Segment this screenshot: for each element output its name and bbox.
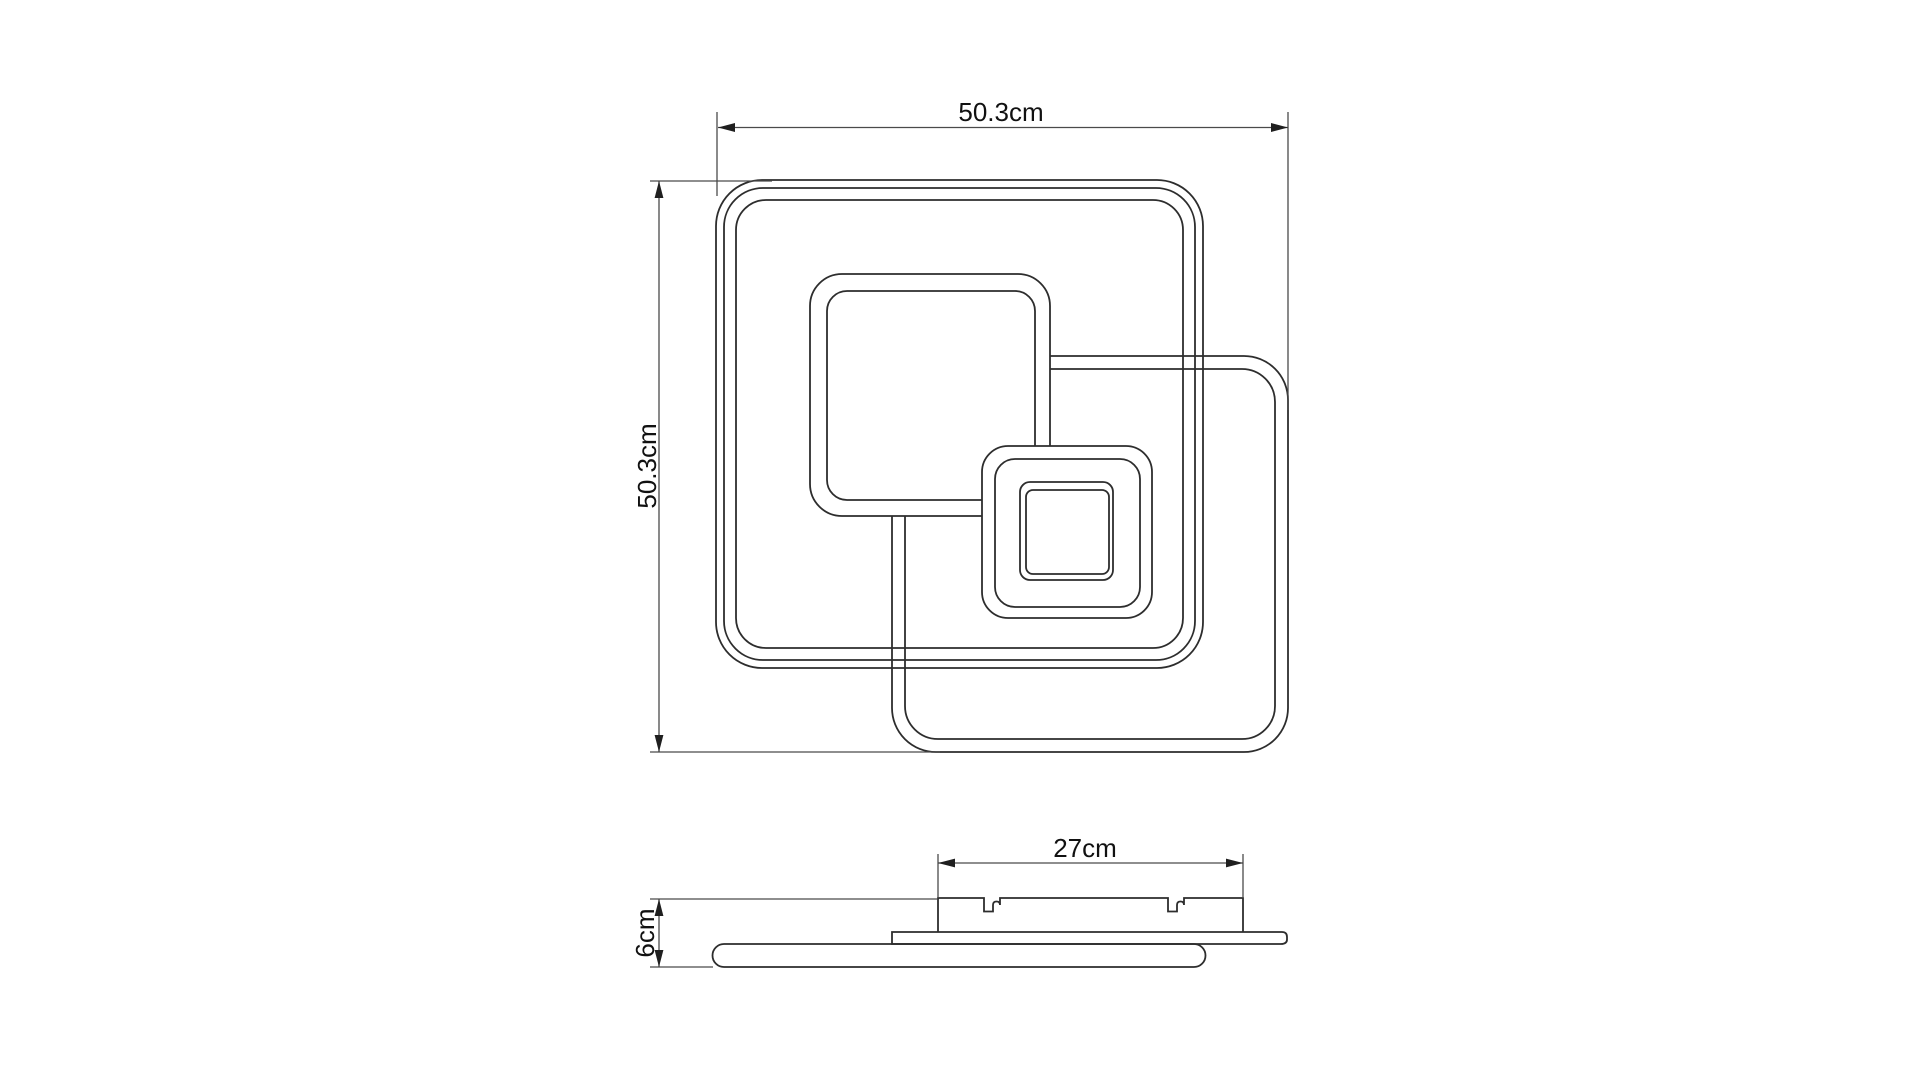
top-view-width-label: 50.3cm — [958, 97, 1043, 127]
arrowhead-right — [1226, 859, 1243, 868]
arrowhead-left — [718, 123, 735, 132]
technical-drawing-page: 50.3cm 50.3cm — [0, 0, 1920, 1080]
small-center-square — [982, 446, 1152, 618]
offset-frame-profile — [892, 932, 1287, 944]
side-view: 27cm 6cm — [630, 833, 1287, 967]
lamp-dimension-drawing: 50.3cm 50.3cm — [0, 0, 1920, 1080]
side-view-height-label: 6cm — [630, 908, 660, 957]
top-view-height-label: 50.3cm — [632, 423, 662, 508]
small-square-contour-1 — [982, 446, 1152, 618]
side-view-height-dimension: 6cm — [630, 899, 937, 967]
arrowhead-top — [655, 181, 664, 198]
arrowhead-left — [938, 859, 955, 868]
mounting-canopy-profile — [938, 898, 1243, 932]
side-view-width-dimension: 27cm — [938, 833, 1243, 897]
side-view-width-label: 27cm — [1053, 833, 1117, 863]
top-view: 50.3cm 50.3cm — [632, 97, 1288, 752]
arrowhead-bottom — [655, 735, 664, 752]
arrowhead-right — [1271, 123, 1288, 132]
lamp-body-profile — [713, 944, 1206, 967]
